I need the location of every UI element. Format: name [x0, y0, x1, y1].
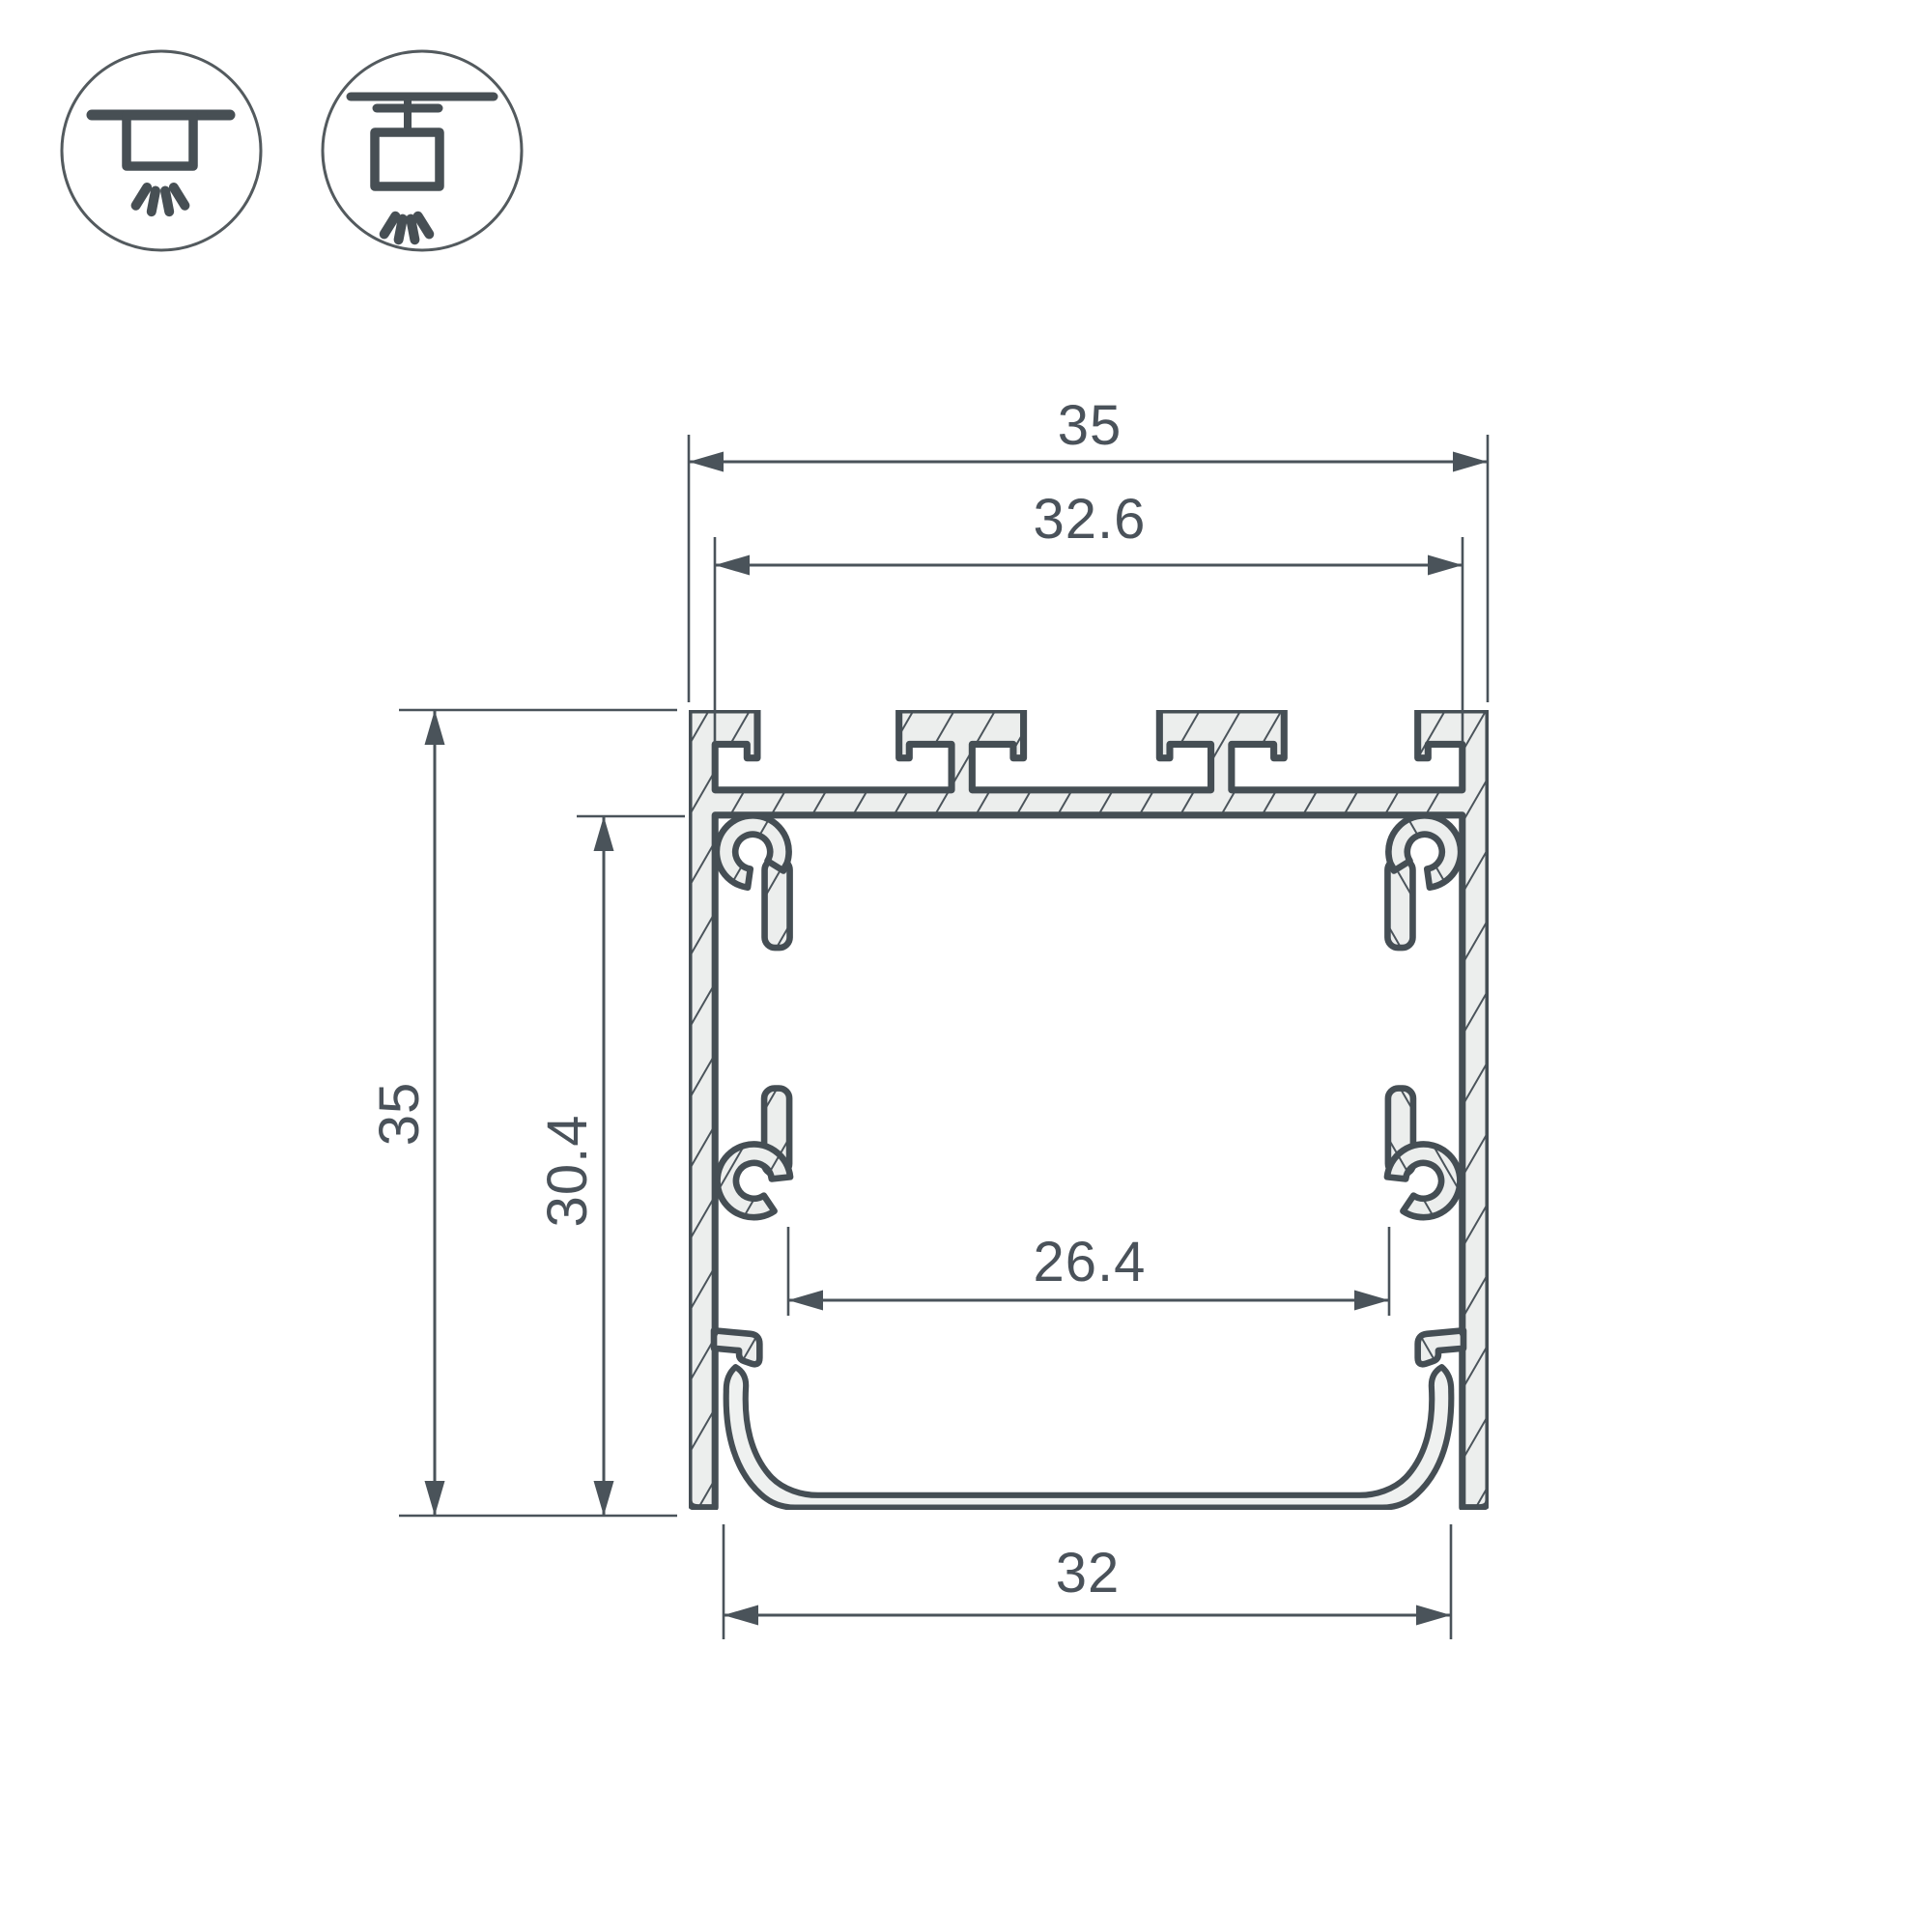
- light-rays: [384, 216, 430, 241]
- left-wall-features: [714, 815, 790, 1364]
- icon-circle: [62, 51, 261, 250]
- dim-inner-width: 26.4: [788, 1231, 1389, 1311]
- dim-outer-width-label: 35: [1058, 394, 1122, 457]
- dim-inner-height-label: 30.4: [536, 1115, 599, 1228]
- dim-outer-height-label: 35: [368, 1082, 431, 1147]
- drawing-svg: 35 32.6 35 30.4 26.4: [0, 0, 1932, 1932]
- dim-outer-height: 35: [368, 710, 445, 1516]
- extension-lines: [399, 435, 1488, 1639]
- dim-inner-width-label: 26.4: [1034, 1231, 1147, 1293]
- dim-inner-height: 30.4: [536, 816, 614, 1516]
- dim-bottom-width: 32: [724, 1542, 1451, 1626]
- screw-boss-mid-right: [1387, 1144, 1460, 1217]
- screw-channel-tang-top-left: [765, 860, 790, 948]
- profile-metal-body: [689, 710, 1489, 1508]
- profile-cross-section: [689, 710, 1489, 1508]
- lens-ledge-right: [1418, 1330, 1463, 1364]
- dim-outer-width: 35: [689, 394, 1488, 472]
- lamp-box: [127, 115, 193, 166]
- dim-top-inner-width: 32.6: [715, 488, 1463, 576]
- dim-top-inner-width-label: 32.6: [1034, 488, 1147, 551]
- diffuser-lens: [726, 1367, 1452, 1507]
- lamp-box: [375, 132, 440, 186]
- surface-mount-light-icon: [62, 51, 261, 250]
- lens-ledge-left: [714, 1330, 759, 1364]
- pendant-mount-light-icon: [323, 51, 522, 250]
- screw-boss-mid-left: [718, 1144, 790, 1217]
- dim-bottom-width-label: 32: [1056, 1542, 1121, 1605]
- light-rays: [136, 187, 185, 212]
- dimensions: 35 32.6 35 30.4 26.4: [368, 394, 1488, 1639]
- right-wall-features: [1387, 815, 1463, 1364]
- screw-channel-tang-top-right: [1387, 860, 1412, 948]
- mounting-icons: [62, 51, 522, 250]
- technical-drawing-page: 35 32.6 35 30.4 26.4: [0, 0, 1932, 1932]
